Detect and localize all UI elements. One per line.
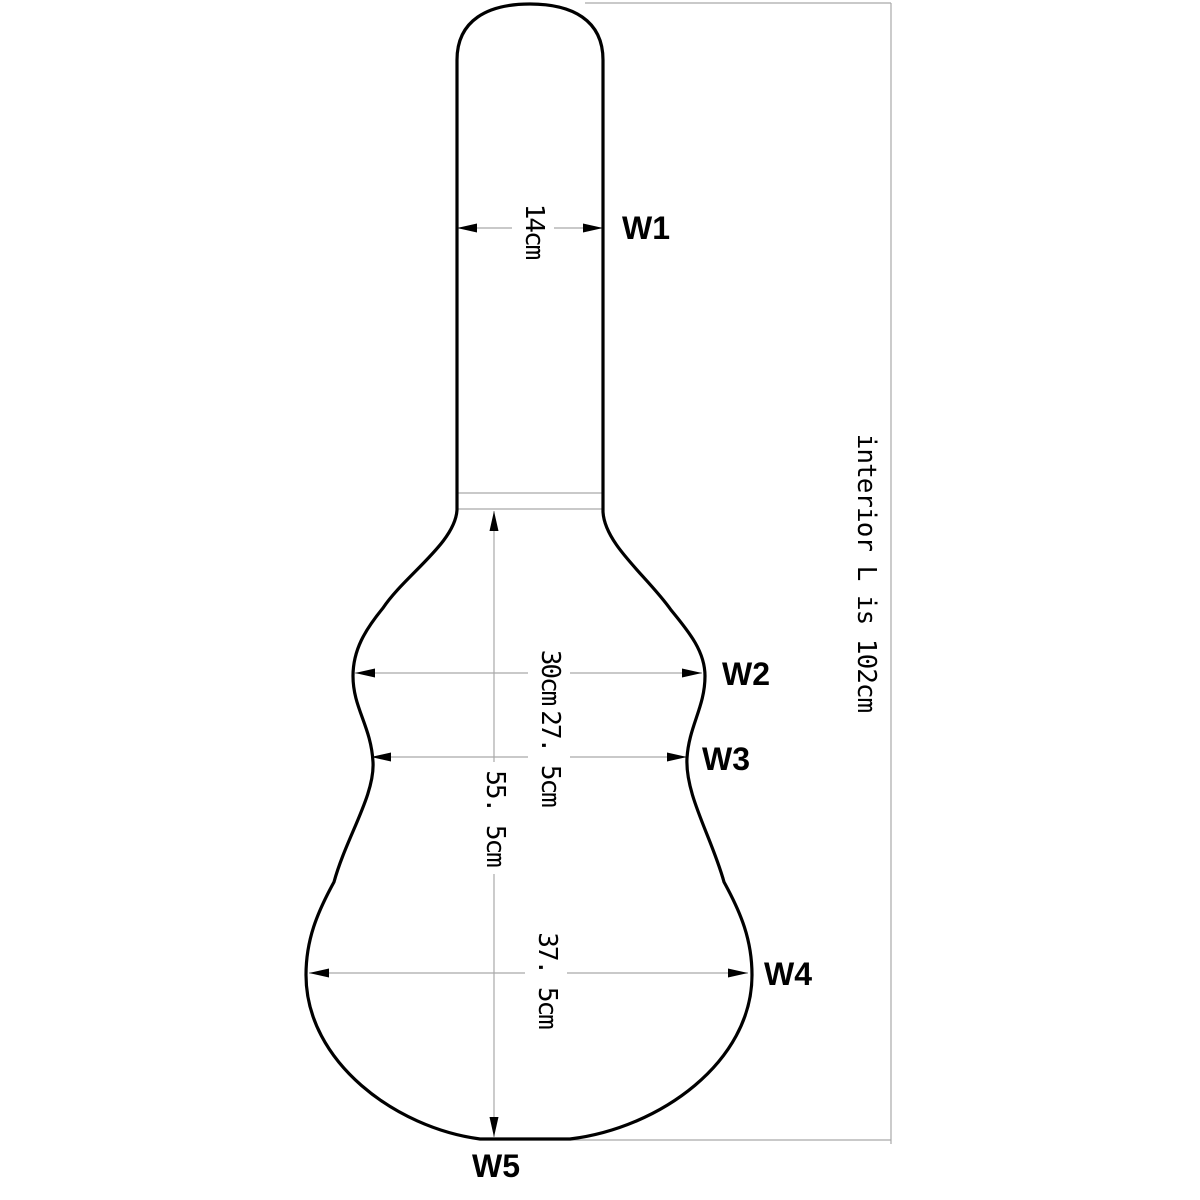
body-length-value: 55. 5cm: [480, 770, 510, 867]
w5-label: W5: [472, 1148, 520, 1184]
w4-arrow-right-icon: [728, 969, 748, 978]
w1-label: W1: [622, 210, 670, 246]
w2-dimension-value: 30cm: [535, 650, 565, 706]
w2-arrow-right-icon: [682, 669, 702, 678]
w1-arrow-right-icon: [583, 224, 603, 233]
w3-dimension-value: 27. 5cm: [535, 710, 565, 807]
w4-label: W4: [764, 956, 812, 992]
body-length-arrow-up-icon: [490, 511, 499, 531]
body-length-arrow-down-icon: [490, 1117, 499, 1137]
w3-label: W3: [702, 741, 750, 777]
w4-dimension-value: 37. 5cm: [532, 932, 562, 1029]
guitar-case-dimension-diagram: 14cm 30cm 27. 5cm 55. 5cm 37. 5cm interi…: [0, 0, 1200, 1200]
w2-arrow-left-icon: [355, 669, 375, 678]
w1-dimension-value: 14cm: [519, 204, 549, 260]
w1-arrow-left-icon: [457, 224, 477, 233]
interior-length-note: interior L is 102cm: [851, 434, 881, 713]
diagram-canvas: 14cm 30cm 27. 5cm 55. 5cm 37. 5cm interi…: [0, 0, 1200, 1200]
w4-arrow-left-icon: [309, 969, 329, 978]
w2-label: W2: [722, 656, 770, 692]
w3-arrow-right-icon: [667, 753, 687, 762]
